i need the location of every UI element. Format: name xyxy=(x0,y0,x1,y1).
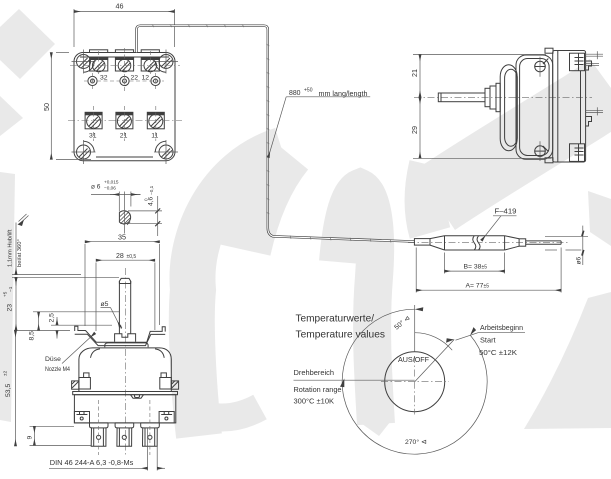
svg-text:21: 21 xyxy=(120,133,128,140)
svg-text:11: 11 xyxy=(151,133,158,140)
svg-text:ø6: ø6 xyxy=(576,256,583,264)
svg-text:±2: ±2 xyxy=(3,370,8,376)
svg-text:Temperaturwerte/: Temperaturwerte/ xyxy=(296,314,375,325)
svg-text:53,5: 53,5 xyxy=(5,384,12,397)
svg-text:12: 12 xyxy=(142,75,150,82)
svg-text:−0,06: −0,06 xyxy=(104,186,116,191)
svg-text:F–419: F–419 xyxy=(495,209,517,216)
svg-text:880: 880 xyxy=(289,90,301,97)
svg-text:0: 0 xyxy=(144,198,149,201)
svg-text:Arbeitsbeginn: Arbeitsbeginn xyxy=(480,323,523,332)
svg-text:1,1mm Hub/lift: 1,1mm Hub/lift xyxy=(8,229,14,267)
svg-text:23: 23 xyxy=(7,304,14,312)
svg-text:Start: Start xyxy=(480,336,496,345)
svg-text:Rotation range: Rotation range xyxy=(294,385,342,394)
svg-text:ø5: ø5 xyxy=(101,301,109,308)
svg-text:Drehbereich: Drehbereich xyxy=(294,368,335,377)
svg-text:28: 28 xyxy=(116,253,124,260)
svg-text:+0,015: +0,015 xyxy=(104,180,119,185)
svg-text:2,5: 2,5 xyxy=(49,313,56,323)
svg-text:300°C ±10K: 300°C ±10K xyxy=(294,397,335,406)
svg-text:−1: −1 xyxy=(8,286,13,292)
svg-text:8,5: 8,5 xyxy=(29,331,36,341)
svg-text:29: 29 xyxy=(410,126,419,134)
svg-text:−0,1: −0,1 xyxy=(149,185,154,195)
svg-text:270° ⊲: 270° ⊲ xyxy=(405,438,427,446)
svg-text:Nozzle M4: Nozzle M4 xyxy=(45,366,70,373)
svg-text:±0,5: ±0,5 xyxy=(127,254,137,260)
svg-text:35: 35 xyxy=(118,232,126,241)
svg-text:B= 38: B= 38 xyxy=(464,263,482,270)
svg-text:+5: +5 xyxy=(3,291,8,297)
svg-text:Temperature values: Temperature values xyxy=(296,330,386,341)
svg-text:±5: ±5 xyxy=(484,283,490,289)
svg-text:bei/at 360°: bei/at 360° xyxy=(17,239,23,267)
svg-text:⌀ 6: ⌀ 6 xyxy=(91,184,101,191)
svg-text:9: 9 xyxy=(27,436,34,440)
svg-text:AUS/OFF: AUS/OFF xyxy=(398,355,429,364)
svg-text:Düse: Düse xyxy=(45,356,61,363)
svg-text:31: 31 xyxy=(89,133,97,140)
svg-text:21: 21 xyxy=(410,69,419,77)
svg-text:46: 46 xyxy=(116,2,124,11)
svg-text:22: 22 xyxy=(131,75,139,82)
svg-text:A= 77: A= 77 xyxy=(466,282,484,289)
svg-text:DIN 46 244-A 6,3 -0,8-Ms: DIN 46 244-A 6,3 -0,8-Ms xyxy=(50,460,134,467)
svg-text:4,6: 4,6 xyxy=(148,197,155,206)
svg-text:50: 50 xyxy=(42,103,51,111)
svg-text:±5: ±5 xyxy=(482,264,488,270)
svg-text:32: 32 xyxy=(100,75,108,82)
svg-text:50°C ±12K: 50°C ±12K xyxy=(479,348,517,357)
svg-text:+50: +50 xyxy=(304,88,313,94)
